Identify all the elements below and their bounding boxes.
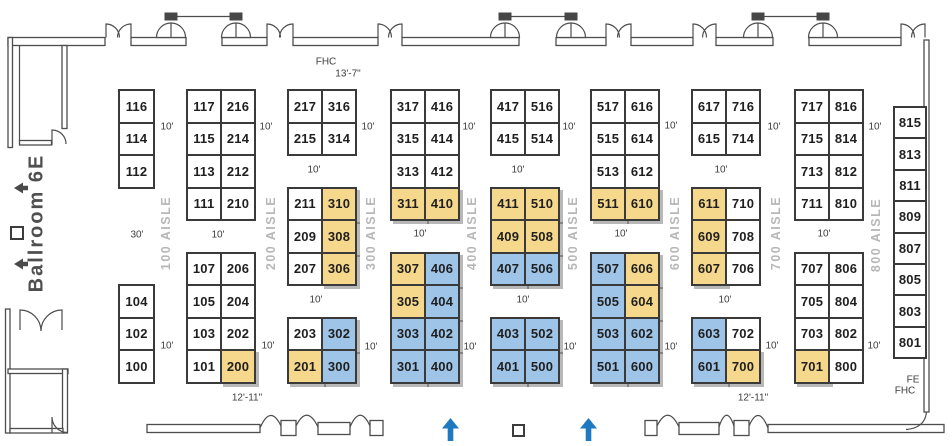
booth-702[interactable]: 702: [725, 317, 761, 352]
booth-105[interactable]: 105: [186, 284, 222, 319]
booth-700[interactable]: 700: [725, 349, 761, 384]
dimension-label: 10': [664, 121, 677, 132]
booth-516[interactable]: 516: [524, 89, 560, 124]
booth-711[interactable]: 711: [794, 187, 830, 222]
booth-112[interactable]: 112: [118, 154, 155, 189]
booth-114[interactable]: 114: [118, 122, 155, 157]
booth-602[interactable]: 602: [624, 317, 660, 352]
booth-811[interactable]: 811: [893, 169, 927, 202]
booth-204[interactable]: 204: [220, 284, 256, 319]
entrance-marker-square-icon: [512, 424, 525, 437]
dimension-label: 10': [714, 165, 727, 176]
aisle-label-700: 700 AISLE: [769, 196, 783, 270]
booth-708[interactable]: 708: [725, 219, 761, 254]
booth-210[interactable]: 210: [220, 187, 256, 222]
booth-102[interactable]: 102: [118, 317, 155, 352]
booth-515[interactable]: 515: [590, 122, 626, 157]
dimension-label: 10': [364, 342, 377, 353]
booth-103[interactable]: 103: [186, 317, 222, 352]
booth-805[interactable]: 805: [893, 263, 927, 296]
booth-310[interactable]: 310: [321, 187, 357, 222]
booth-707[interactable]: 707: [794, 252, 830, 287]
booth-203[interactable]: 203: [287, 317, 323, 352]
dimension-label: 10': [309, 295, 322, 306]
booth-307[interactable]: 307: [390, 252, 426, 287]
booth-714[interactable]: 714: [725, 122, 761, 157]
booth-212[interactable]: 212: [220, 154, 256, 189]
dimension-label: FHC: [316, 57, 337, 68]
booth-514[interactable]: 514: [524, 122, 560, 157]
booth-401[interactable]: 401: [490, 349, 526, 384]
booth-406[interactable]: 406: [424, 252, 460, 287]
dimension-label: 10': [614, 229, 627, 240]
booth-400[interactable]: 400: [424, 349, 460, 384]
booth-107[interactable]: 107: [186, 252, 222, 287]
booth-508[interactable]: 508: [524, 219, 560, 254]
ballroom-marker-square-icon: [10, 226, 24, 240]
aisle-label-500: 500 AISLE: [566, 196, 580, 270]
booth-414[interactable]: 414: [424, 122, 460, 157]
dimension-label: 10': [767, 122, 780, 133]
booth-315[interactable]: 315: [390, 122, 426, 157]
dimension-label: FE: [907, 375, 920, 386]
booth-814[interactable]: 814: [828, 122, 864, 157]
booth-411[interactable]: 411: [490, 187, 526, 222]
ballroom-left-arrow-icon: [14, 182, 28, 194]
booth-603[interactable]: 603: [691, 317, 727, 352]
booth-701[interactable]: 701: [794, 349, 830, 384]
booth-215[interactable]: 215: [287, 122, 323, 157]
booth-610[interactable]: 610: [624, 187, 660, 222]
dimension-label: 12'-11": [232, 393, 262, 404]
dimension-label: 10': [259, 122, 272, 133]
aisle-label-600: 600 AISLE: [668, 196, 682, 270]
aisle-label-800: 800 AISLE: [869, 198, 883, 272]
booth-214[interactable]: 214: [220, 122, 256, 157]
booth-506[interactable]: 506: [524, 252, 560, 287]
booth-615[interactable]: 615: [691, 122, 727, 157]
dimension-label: 10': [867, 341, 880, 352]
aisle-label-100: 100 AISLE: [159, 196, 173, 270]
booth-611[interactable]: 611: [691, 187, 727, 222]
dimension-label: 10': [868, 122, 881, 133]
booth-501[interactable]: 501: [590, 349, 626, 384]
dimension-label: 10': [211, 230, 224, 241]
dimension-label: 10': [563, 342, 576, 353]
booth-403[interactable]: 403: [490, 317, 526, 352]
booth-416[interactable]: 416: [424, 89, 460, 124]
booth-606[interactable]: 606: [624, 252, 660, 287]
booth-306[interactable]: 306: [321, 252, 357, 287]
dimension-label: 10': [664, 342, 677, 353]
booth-715[interactable]: 715: [794, 122, 830, 157]
booth-314[interactable]: 314: [321, 122, 357, 157]
booth-813[interactable]: 813: [893, 137, 927, 170]
dimension-label: 10': [307, 165, 320, 176]
booth-317[interactable]: 317: [390, 89, 426, 124]
dimension-label: 10': [261, 341, 274, 352]
booth-816[interactable]: 816: [828, 89, 864, 124]
booth-604[interactable]: 604: [624, 284, 660, 319]
entrance-up-arrow-icon: [580, 418, 597, 441]
dimension-label: 30': [130, 230, 143, 241]
dimension-label: 10': [562, 122, 575, 133]
booth-809[interactable]: 809: [893, 200, 927, 233]
booth-612[interactable]: 612: [624, 154, 660, 189]
dimension-label: 10': [516, 295, 529, 306]
ballroom-label: Ballroom 6E: [26, 154, 49, 293]
booth-100[interactable]: 100: [118, 349, 155, 384]
dimension-label: 13'-7": [335, 69, 360, 80]
booth-517[interactable]: 517: [590, 89, 626, 124]
ballroom-left-arrow-icon: [14, 258, 28, 270]
booth-200[interactable]: 200: [220, 349, 256, 384]
booth-511[interactable]: 511: [590, 187, 626, 222]
booth-316[interactable]: 316: [321, 89, 357, 124]
booth-113[interactable]: 113: [186, 154, 222, 189]
booth-116[interactable]: 116: [118, 89, 155, 124]
booth-412[interactable]: 412: [424, 154, 460, 189]
booth-300[interactable]: 300: [321, 349, 357, 384]
booth-206[interactable]: 206: [220, 252, 256, 287]
booth-807[interactable]: 807: [893, 232, 927, 265]
booth-616[interactable]: 616: [624, 89, 660, 124]
booth-601[interactable]: 601: [691, 349, 727, 384]
dimension-label: 12'-11": [738, 393, 768, 404]
booth-801[interactable]: 801: [893, 326, 927, 359]
booth-803[interactable]: 803: [893, 294, 927, 327]
booth-303[interactable]: 303: [390, 317, 426, 352]
booth-502[interactable]: 502: [524, 317, 560, 352]
dimension-label: 10': [160, 122, 173, 133]
booth-311[interactable]: 311: [390, 187, 426, 222]
booth-402[interactable]: 402: [424, 317, 460, 352]
booth-810[interactable]: 810: [828, 187, 864, 222]
booth-313[interactable]: 313: [390, 154, 426, 189]
booth-703[interactable]: 703: [794, 317, 830, 352]
booth-410[interactable]: 410: [424, 187, 460, 222]
booth-209[interactable]: 209: [287, 219, 323, 254]
booth-717[interactable]: 717: [794, 89, 830, 124]
booth-607[interactable]: 607: [691, 252, 727, 287]
dimension-label: 10': [413, 229, 426, 240]
booth-404[interactable]: 404: [424, 284, 460, 319]
booth-609[interactable]: 609: [691, 219, 727, 254]
aisle-label-300: 300 AISLE: [364, 196, 378, 270]
booth-705[interactable]: 705: [794, 284, 830, 319]
booth-207[interactable]: 207: [287, 252, 323, 287]
booth-513[interactable]: 513: [590, 154, 626, 189]
aisle-label-400: 400 AISLE: [465, 196, 479, 270]
booth-713[interactable]: 713: [794, 154, 830, 189]
booth-409[interactable]: 409: [490, 219, 526, 254]
booth-101[interactable]: 101: [186, 349, 222, 384]
booth-407[interactable]: 407: [490, 252, 526, 287]
booth-716[interactable]: 716: [725, 89, 761, 124]
booth-706[interactable]: 706: [725, 252, 761, 287]
booth-301[interactable]: 301: [390, 349, 426, 384]
booth-804[interactable]: 804: [828, 284, 864, 319]
booth-614[interactable]: 614: [624, 122, 660, 157]
booth-617[interactable]: 617: [691, 89, 727, 124]
aisle-label-200: 200 AISLE: [264, 196, 278, 270]
booth-505[interactable]: 505: [590, 284, 626, 319]
booth-305[interactable]: 305: [390, 284, 426, 319]
dimension-label: 10': [765, 341, 778, 352]
booth-600[interactable]: 600: [624, 349, 660, 384]
floorplan: 1161141121041021001172161152141132121112…: [0, 0, 952, 446]
booth-415[interactable]: 415: [490, 122, 526, 157]
entrance-up-arrow-icon: [442, 418, 459, 441]
booth-104[interactable]: 104: [118, 284, 155, 319]
booth-500[interactable]: 500: [524, 349, 560, 384]
booth-503[interactable]: 503: [590, 317, 626, 352]
booth-111[interactable]: 111: [186, 187, 222, 222]
booth-201[interactable]: 201: [287, 349, 323, 384]
booth-802[interactable]: 802: [828, 317, 864, 352]
dimension-label: 10': [817, 229, 830, 240]
booth-800[interactable]: 800: [828, 349, 864, 384]
booth-302[interactable]: 302: [321, 317, 357, 352]
booth-216[interactable]: 216: [220, 89, 256, 124]
dimension-label: FHC: [895, 386, 916, 397]
booth-217[interactable]: 217: [287, 89, 323, 124]
dimension-label: 10': [463, 342, 476, 353]
booth-815[interactable]: 815: [893, 106, 927, 139]
booth-507[interactable]: 507: [590, 252, 626, 287]
booth-115[interactable]: 115: [186, 122, 222, 157]
booth-308[interactable]: 308: [321, 219, 357, 254]
booth-202[interactable]: 202: [220, 317, 256, 352]
booth-806[interactable]: 806: [828, 252, 864, 287]
dimension-label: 10': [718, 295, 731, 306]
booth-117[interactable]: 117: [186, 89, 222, 124]
dimension-label: 10': [511, 165, 524, 176]
booth-510[interactable]: 510: [524, 187, 560, 222]
booth-417[interactable]: 417: [490, 89, 526, 124]
booth-211[interactable]: 211: [287, 187, 323, 222]
dimension-label: 10': [361, 122, 374, 133]
booth-710[interactable]: 710: [725, 187, 761, 222]
dimension-label: 10': [160, 341, 173, 352]
dimension-label: 10': [462, 122, 475, 133]
booth-812[interactable]: 812: [828, 154, 864, 189]
